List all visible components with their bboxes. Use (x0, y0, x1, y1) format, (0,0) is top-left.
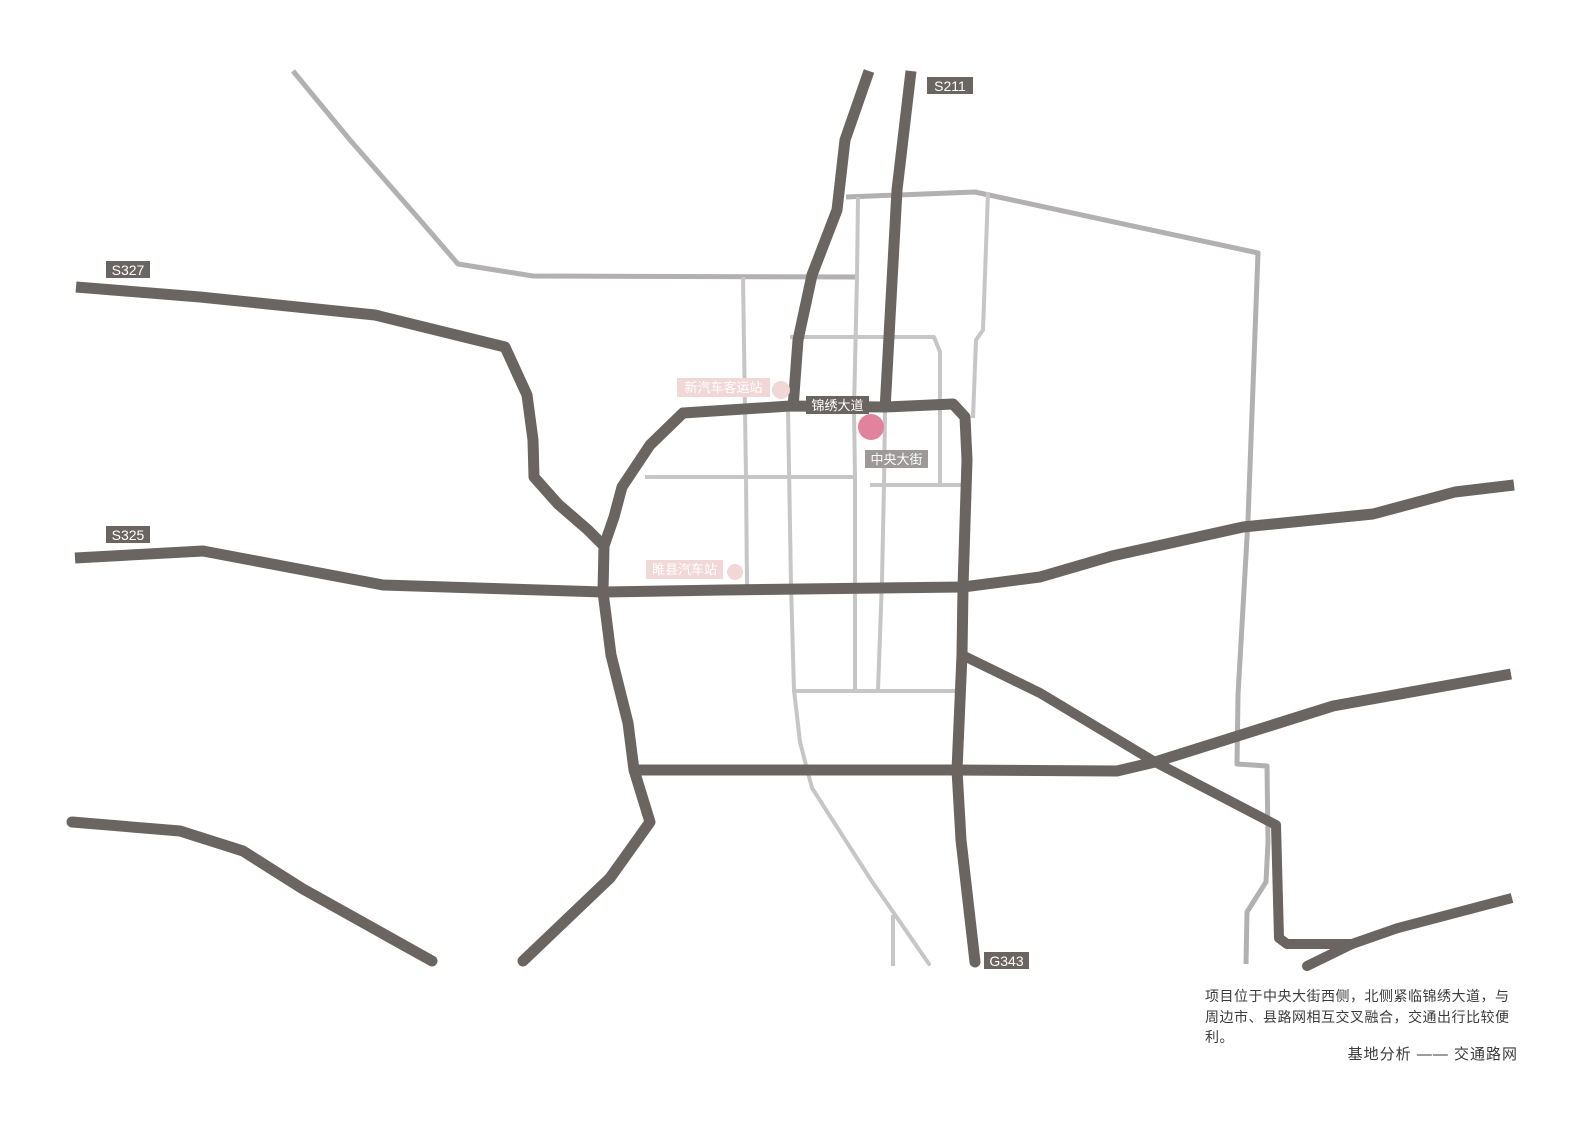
road-north-east-boundary (846, 192, 1268, 964)
road-nw-rural-road (293, 71, 858, 277)
site-description-line2: 周边市、县路网相互交叉融合，交通出行比较便利。 (1205, 1009, 1510, 1046)
road-south-road (634, 674, 1511, 771)
map-label-suixian-bus-station: 睢县汽车站 (646, 560, 723, 579)
road-boundary-inner-vertical (973, 192, 988, 418)
new-bus-terminal-dot (772, 381, 790, 399)
road-grid-vertical-west (743, 277, 747, 585)
suixian-bus-station-dot (727, 564, 743, 580)
road-s327-road (76, 287, 604, 546)
map-label-s325: S325 (106, 526, 150, 543)
map-label-zhongyang-street: 中央大街 (865, 450, 928, 468)
map-label-jinxiu-avenue: 锦绣大道 (806, 396, 869, 414)
road-jinxiu-avenue-east-ring-g343 (683, 404, 975, 962)
site-description-line1: 项目位于中央大街西侧，北侧紧临锦绣大道，与 (1205, 988, 1510, 1004)
road-grid-vertical-center (788, 410, 929, 964)
map-label-s211: S211 (927, 77, 973, 94)
road-boundary-west-vertical (854, 197, 858, 690)
project-site-dot (858, 414, 884, 440)
road-network-canvas (0, 0, 1588, 1123)
map-label-new-bus-terminal: 新汽车客运站 (677, 378, 770, 397)
road-s325-central-road (75, 485, 1514, 592)
road-southwest-road (72, 822, 432, 961)
page-title: 基地分析 —— 交通路网 (1336, 1043, 1518, 1064)
road-s211-east-branch (885, 71, 911, 410)
map-label-s327: S327 (106, 261, 150, 278)
site-description: 项目位于中央大街西侧，北侧紧临锦绣大道，与 周边市、县路网相互交叉融合，交通出行… (1205, 986, 1517, 1048)
map-label-g343: G343 (984, 952, 1029, 969)
site-analysis-map: S211S327S325G343锦绣大道中央大街新汽车客运站睢县汽车站 项目位于… (0, 0, 1588, 1123)
